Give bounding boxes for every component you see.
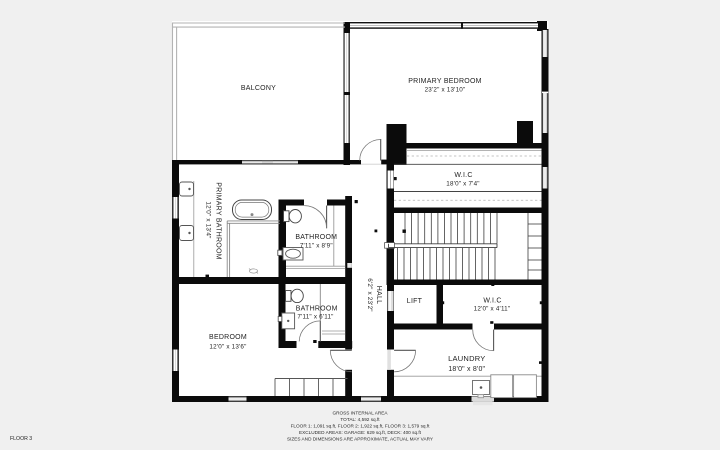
svg-text:HALL: HALL: [375, 286, 382, 305]
svg-text:23'2" x 13'10": 23'2" x 13'10": [425, 87, 466, 94]
svg-text:LIFT: LIFT: [407, 298, 423, 305]
svg-text:7'11" x 6'11": 7'11" x 6'11": [297, 314, 333, 321]
svg-text:6'2" x 23'2": 6'2" x 23'2": [366, 278, 373, 311]
svg-text:PRIMARY BATHROOM: PRIMARY BATHROOM: [215, 182, 222, 260]
svg-text:FLOOR 1: 1,091 sq.ft, FLOOR 2:: FLOOR 1: 1,091 sq.ft, FLOOR 2: 1,922 sq.…: [291, 424, 431, 429]
svg-text:12'0" x 13'6": 12'0" x 13'6": [209, 344, 246, 351]
svg-text:LAUNDRY: LAUNDRY: [448, 354, 485, 363]
svg-text:W.I.C: W.I.C: [454, 172, 472, 179]
svg-text:TOTAL: 4,592 sq.ft: TOTAL: 4,592 sq.ft: [340, 417, 380, 422]
svg-text:7'11" x 8'9": 7'11" x 8'9": [300, 243, 333, 250]
svg-text:BATHROOM: BATHROOM: [296, 305, 338, 312]
svg-text:12'0" x 4'11": 12'0" x 4'11": [474, 306, 511, 313]
svg-text:18'0" x 8'0": 18'0" x 8'0": [448, 366, 485, 373]
svg-text:18'0" x 7'4": 18'0" x 7'4": [446, 181, 479, 188]
svg-text:EXCLUDED AREAS: GARAGE: 629 sq: EXCLUDED AREAS: GARAGE: 629 sq.ft, DECK:…: [299, 430, 422, 435]
svg-text:GROSS INTERNAL AREA: GROSS INTERNAL AREA: [332, 411, 388, 416]
svg-text:W.I.C: W.I.C: [483, 298, 501, 305]
svg-text:BATHROOM: BATHROOM: [295, 234, 337, 241]
svg-text:FLOOR 3: FLOOR 3: [10, 436, 32, 442]
svg-text:12'0" x 13'4": 12'0" x 13'4": [205, 201, 212, 238]
svg-text:BALCONY: BALCONY: [241, 85, 276, 92]
svg-text:PRIMARY BEDROOM: PRIMARY BEDROOM: [408, 78, 482, 85]
svg-text:BEDROOM: BEDROOM: [209, 334, 247, 341]
svg-text:SIZES AND DIMENSIONS ARE APPRO: SIZES AND DIMENSIONS ARE APPROXIMATE, AC…: [287, 436, 434, 441]
